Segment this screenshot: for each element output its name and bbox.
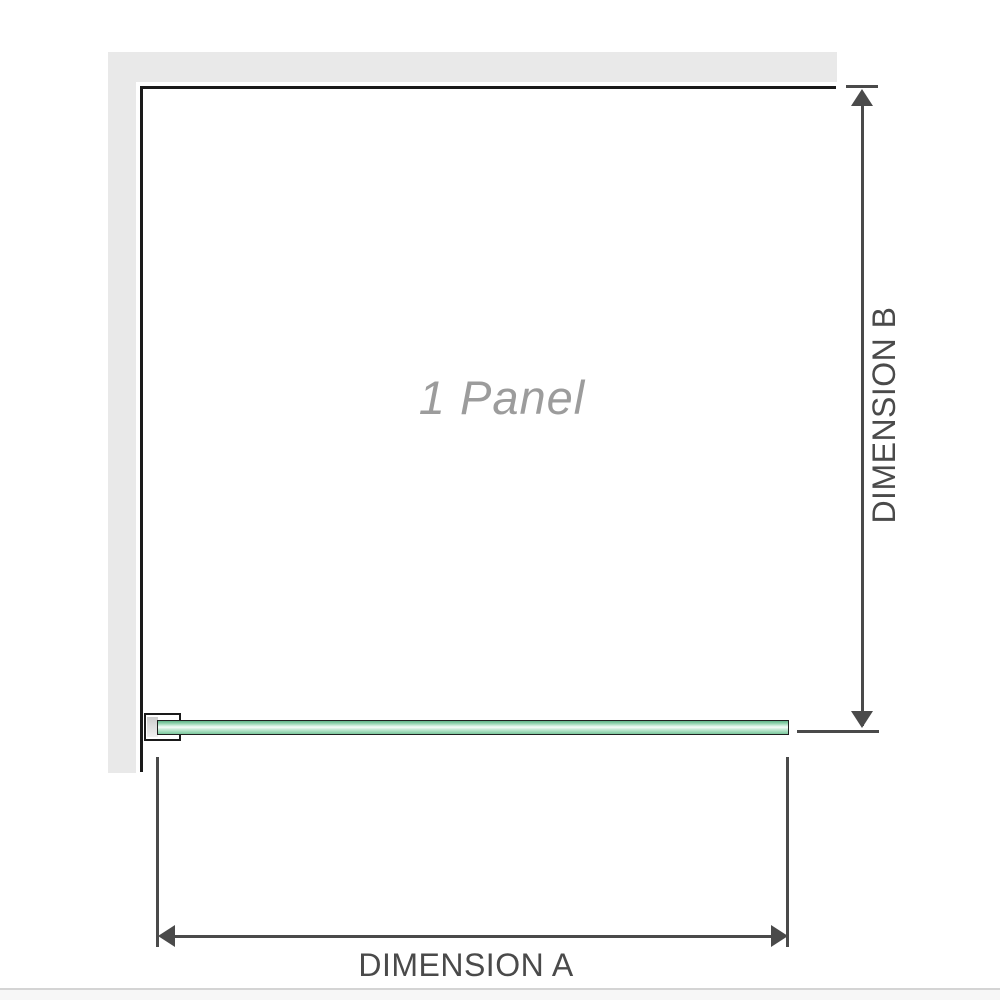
arrow-up-icon — [851, 89, 873, 106]
panel-outline-top — [140, 86, 836, 89]
arrow-left-icon — [158, 925, 175, 947]
dimension-b-label: DIMENSION B — [864, 265, 904, 565]
footer-strip — [0, 990, 1000, 1000]
dimension-a-line — [162, 935, 784, 938]
dimension-b-tick-top — [846, 85, 878, 88]
panel-outline-left — [140, 86, 143, 772]
arrow-down-icon — [851, 711, 873, 728]
arrow-right-icon — [771, 925, 788, 947]
wall-left-bar — [108, 52, 136, 773]
dimension-a-extension-right — [786, 757, 789, 947]
diagram-canvas: 1 Panel DIMENSION B DIMENSION A — [0, 0, 1000, 1000]
dimension-b-tick-bottom — [797, 730, 879, 733]
glass-panel-bar — [157, 720, 789, 735]
panel-count-label: 1 Panel — [377, 372, 627, 424]
dimension-a-label: DIMENSION A — [316, 948, 616, 982]
dimension-a-extension-left — [156, 757, 159, 947]
wall-top-bar — [108, 52, 837, 82]
